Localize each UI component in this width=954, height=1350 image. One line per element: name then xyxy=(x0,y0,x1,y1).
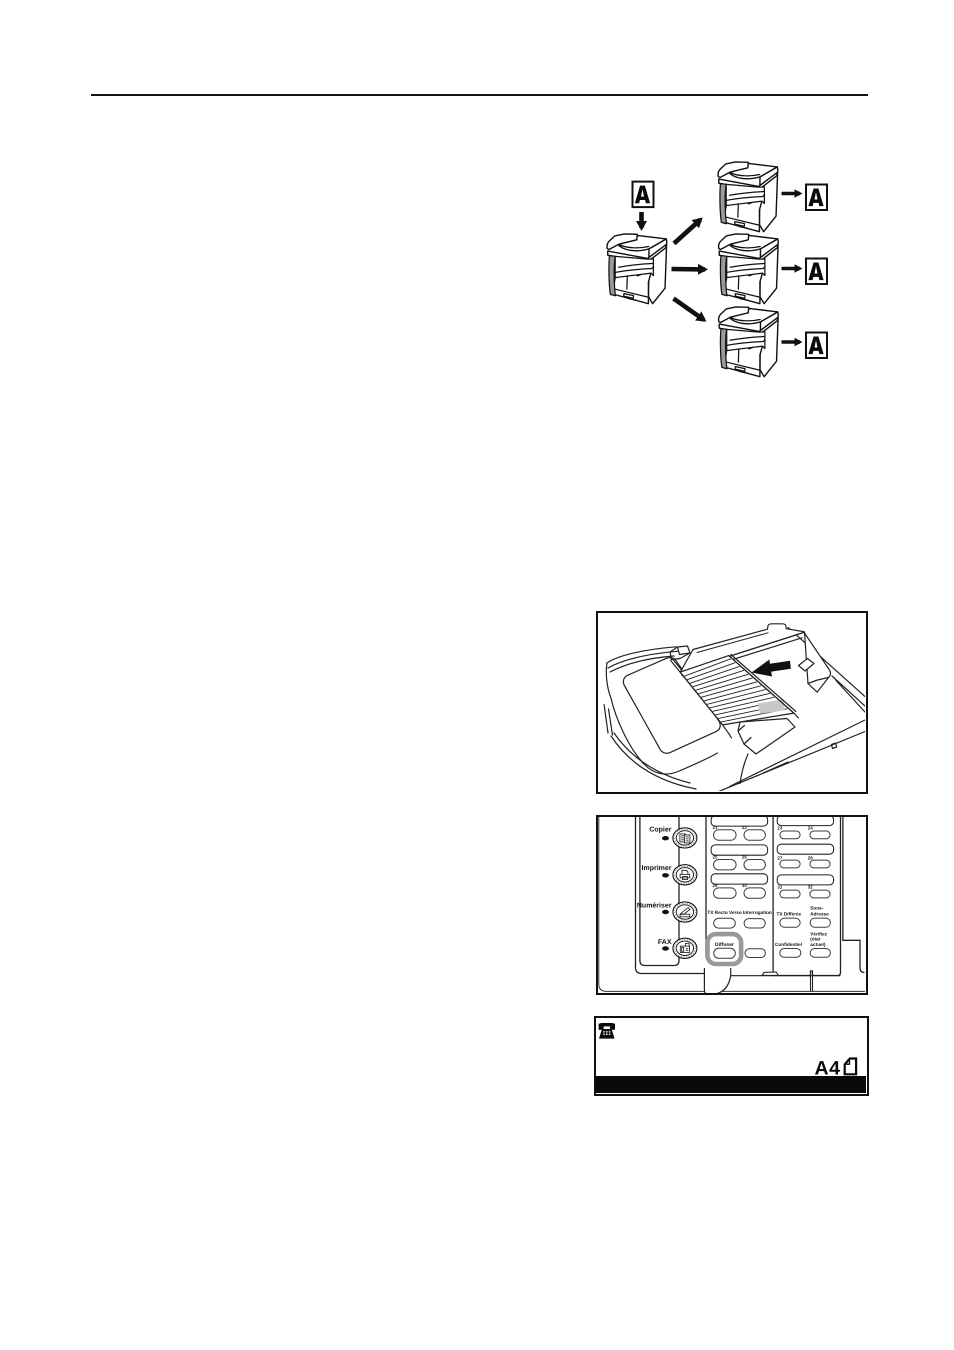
svg-text:Imprimer: Imprimer xyxy=(642,864,672,872)
svg-text:29: 29 xyxy=(713,883,718,888)
svg-text:TX Différée: TX Différée xyxy=(777,911,802,916)
svg-text:Sous-: Sous- xyxy=(810,906,823,911)
svg-text:FAX: FAX xyxy=(658,939,672,946)
svg-text:21: 21 xyxy=(713,825,718,830)
svg-text:26: 26 xyxy=(742,855,747,860)
svg-text:28: 28 xyxy=(808,855,813,860)
svg-text:25: 25 xyxy=(713,855,718,860)
svg-text:30: 30 xyxy=(742,883,747,888)
svg-text:Confidentiel: Confidentiel xyxy=(775,942,802,947)
svg-text:Interrogation: Interrogation xyxy=(743,910,772,915)
svg-text:TX Recto Verso: TX Recto Verso xyxy=(707,910,742,915)
svg-text:23: 23 xyxy=(777,825,782,830)
svg-text:22: 22 xyxy=(742,825,747,830)
svg-text:actuel): actuel) xyxy=(810,942,826,947)
svg-text:24: 24 xyxy=(808,825,813,830)
svg-text:32: 32 xyxy=(808,885,813,890)
svg-text:Numériser: Numériser xyxy=(637,901,672,909)
svg-text:Diffuser: Diffuser xyxy=(715,942,734,948)
svg-text:Adresse: Adresse xyxy=(810,911,829,916)
svg-text:31: 31 xyxy=(777,885,782,890)
svg-text:A4: A4 xyxy=(815,1057,841,1079)
svg-text:Copier: Copier xyxy=(649,826,671,834)
svg-text:27: 27 xyxy=(777,855,782,860)
